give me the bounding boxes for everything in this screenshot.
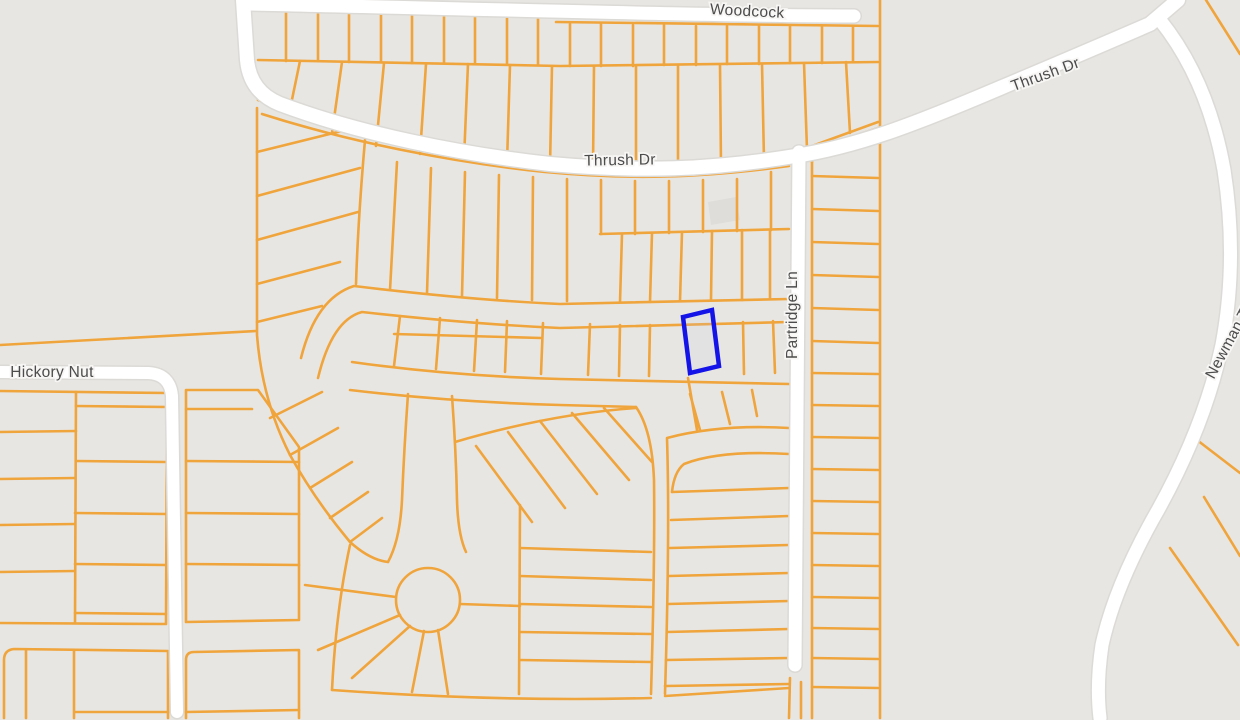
building-footprint bbox=[708, 197, 740, 225]
road-partridge bbox=[795, 152, 799, 665]
map-viewport[interactable]: Woodcock Thrush Dr Thrush Dr Partridge L… bbox=[0, 0, 1240, 720]
label-hickory-nut: Hickory Nut bbox=[10, 364, 94, 381]
highlighted-parcel[interactable] bbox=[683, 310, 719, 373]
map-canvas[interactable]: Woodcock Thrush Dr Thrush Dr Partridge L… bbox=[0, 0, 1240, 720]
label-partridge-ln: Partridge Ln bbox=[784, 271, 801, 359]
label-thrush-dr-main: Thrush Dr bbox=[584, 151, 656, 169]
